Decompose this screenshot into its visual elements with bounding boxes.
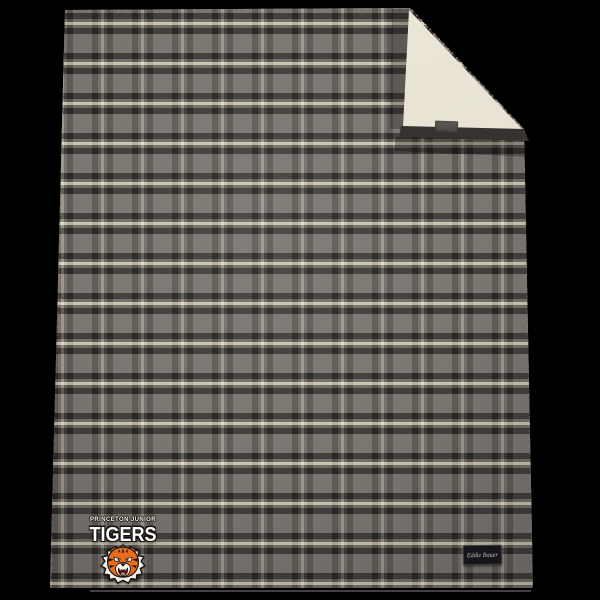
brand-tag-label: Eddie Bauer [467,551,498,559]
blanket [0,0,600,600]
team-logo: PRINCETON JUNIOR TIGERS [82,517,164,584]
tiger-head-icon [100,544,146,584]
logo-team-name: TIGERS [82,524,164,544]
product-photo: PRINCETON JUNIOR TIGERS [0,0,600,600]
brand-tag: Eddie Bauer [463,545,502,566]
lighting-vignette [0,0,600,600]
fold-tag [435,121,458,133]
